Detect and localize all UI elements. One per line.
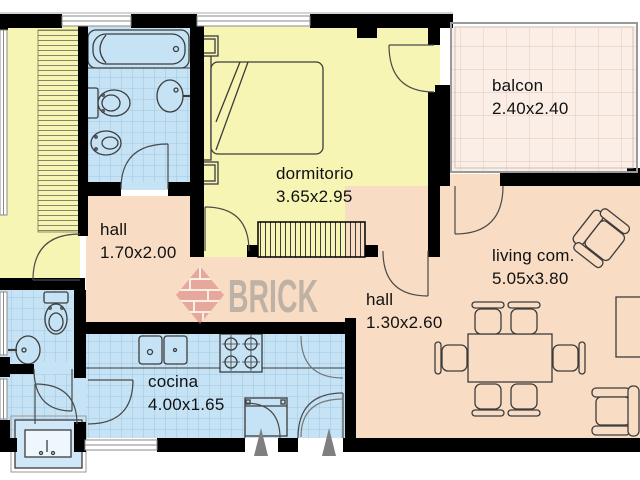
wall — [8, 364, 34, 374]
toilet-bowl-inner — [102, 95, 120, 111]
bath-sink-drain — [174, 88, 178, 92]
wall — [428, 22, 440, 45]
laundry-basin — [25, 430, 71, 457]
wall — [345, 318, 356, 438]
bathtub-drain — [174, 47, 179, 52]
room-dims: 5.05x3.80 — [492, 267, 575, 290]
room-name: cocina — [148, 370, 224, 393]
balcony-threshold — [450, 174, 502, 188]
room-dims: 2.40x2.40 — [492, 97, 568, 120]
bidet-detail — [95, 148, 97, 150]
dining-chair — [435, 342, 467, 374]
wall — [0, 357, 10, 377]
small-sink — [16, 336, 40, 364]
tv-unit — [616, 297, 640, 357]
closet-shelves — [38, 30, 80, 232]
room-name: balcon — [492, 74, 568, 97]
bath-sink — [157, 80, 183, 112]
wall — [0, 14, 8, 30]
wall — [157, 438, 245, 452]
floor-plan-canvas: BRICK — [0, 0, 640, 480]
small-toilet-inner — [49, 313, 63, 331]
wall — [168, 182, 204, 196]
wall — [131, 14, 197, 28]
wall — [0, 438, 17, 452]
room-label-living: living com. 5.05x3.80 — [492, 244, 575, 290]
wall — [435, 85, 450, 186]
floor-plan: BRICK dormitorio 3.65x2.95 balcon 2.40x2… — [0, 0, 640, 480]
room-dims: 1.70x2.00 — [100, 241, 176, 264]
room-label-cocina: cocina 4.00x1.65 — [148, 370, 224, 416]
room-name: dormitorio — [276, 162, 354, 185]
wall — [78, 22, 88, 236]
wall — [74, 422, 86, 452]
bidet-inner — [102, 137, 118, 149]
small-sink-drain — [22, 348, 26, 352]
bedroom-wardrobe — [258, 222, 365, 257]
room-label-balcon: balcon 2.40x2.40 — [492, 74, 568, 120]
room-label-dormitorio: dormitorio 3.65x2.95 — [276, 162, 354, 208]
room-dims: 4.00x1.65 — [148, 393, 224, 416]
dining-chair — [553, 342, 585, 374]
room-name: hall — [366, 288, 442, 311]
sink-drain — [174, 349, 177, 352]
small-toilet-detail — [49, 307, 51, 309]
fridge-hinge — [281, 400, 285, 404]
wall — [343, 438, 640, 452]
wall — [357, 28, 377, 38]
small-toilet-tank — [44, 292, 68, 303]
wall — [278, 438, 298, 452]
bed — [211, 62, 323, 154]
room-name: living com. — [492, 244, 575, 267]
bathtub-inner — [93, 34, 185, 64]
wall — [500, 172, 627, 186]
room-label-hall-lower: hall 1.30x2.60 — [366, 288, 442, 334]
wall — [627, 168, 640, 186]
room-name: hall — [100, 218, 176, 241]
wall — [365, 245, 378, 257]
bidet-detail — [95, 136, 97, 138]
dining-chair — [472, 384, 504, 416]
wall — [190, 22, 204, 257]
watermark: BRICK — [176, 266, 318, 324]
toilet-detail — [102, 110, 104, 112]
wall — [78, 322, 345, 334]
dining-chair — [508, 384, 540, 416]
dining-chair — [508, 302, 540, 334]
dining-chair — [472, 302, 504, 334]
wall — [8, 14, 62, 28]
room-dims: 3.65x2.95 — [276, 185, 354, 208]
room-label-hall-upper: hall 1.70x2.00 — [100, 218, 176, 264]
room-dims: 1.30x2.60 — [366, 311, 442, 334]
sink-drain — [148, 350, 153, 355]
small-toilet-detail — [61, 307, 63, 309]
toilet-detail — [102, 94, 104, 96]
wall — [78, 182, 121, 196]
dining-table — [468, 334, 552, 382]
wall — [0, 420, 10, 440]
armchair-bottom — [592, 386, 639, 436]
watermark-text: BRICK — [228, 270, 318, 322]
